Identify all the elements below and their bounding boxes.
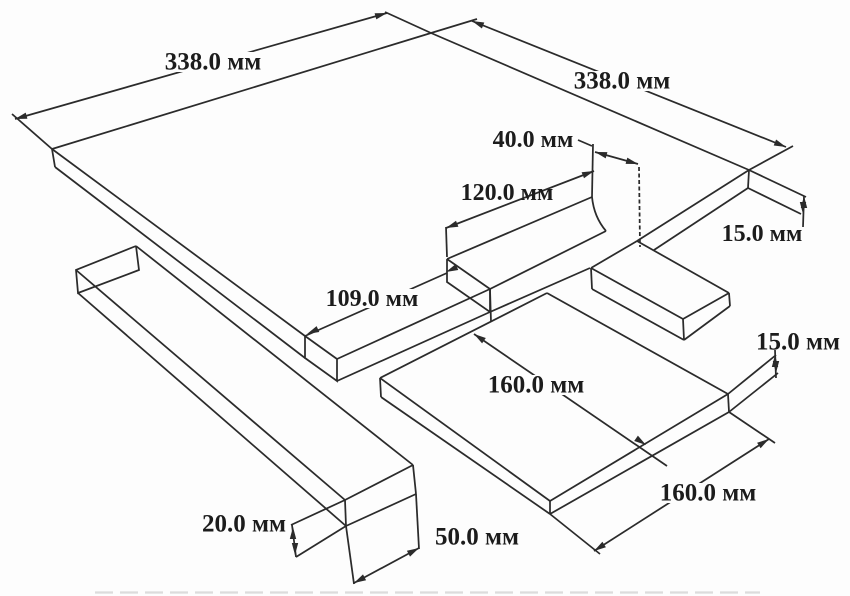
svg-text:20.0 мм: 20.0 мм [202,511,286,538]
svg-text:338.0 мм: 338.0 мм [165,49,262,76]
svg-text:160.0 мм: 160.0 мм [660,480,757,507]
svg-text:40.0 мм: 40.0 мм [493,127,574,153]
svg-text:15.0 мм: 15.0 мм [722,221,803,247]
svg-text:15.0 мм: 15.0 мм [756,329,840,356]
svg-text:338.0 мм: 338.0 мм [574,68,671,95]
svg-text:109.0 мм: 109.0 мм [326,286,419,312]
svg-text:160.0 мм: 160.0 мм [488,372,585,399]
svg-text:50.0 мм: 50.0 мм [435,524,519,551]
svg-text:120.0 мм: 120.0 мм [461,180,554,206]
